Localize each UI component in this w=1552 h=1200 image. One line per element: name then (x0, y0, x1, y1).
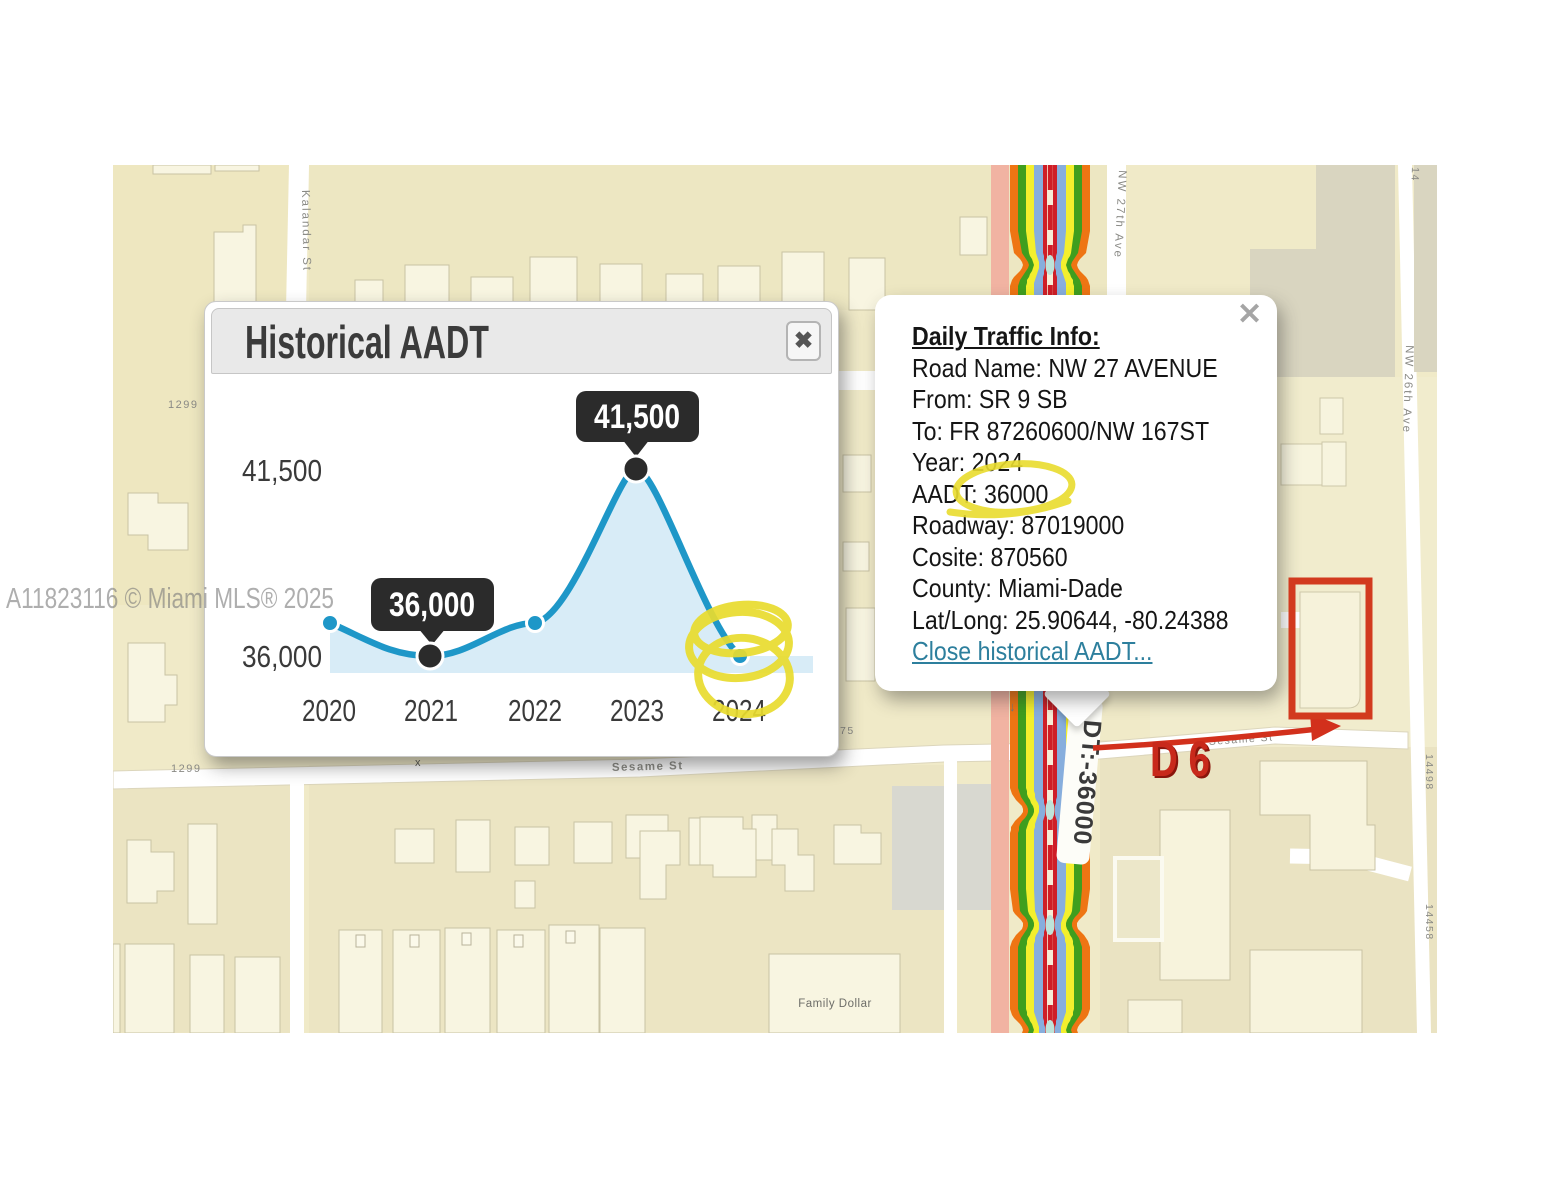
svg-text:D 6: D 6 (1150, 731, 1210, 787)
